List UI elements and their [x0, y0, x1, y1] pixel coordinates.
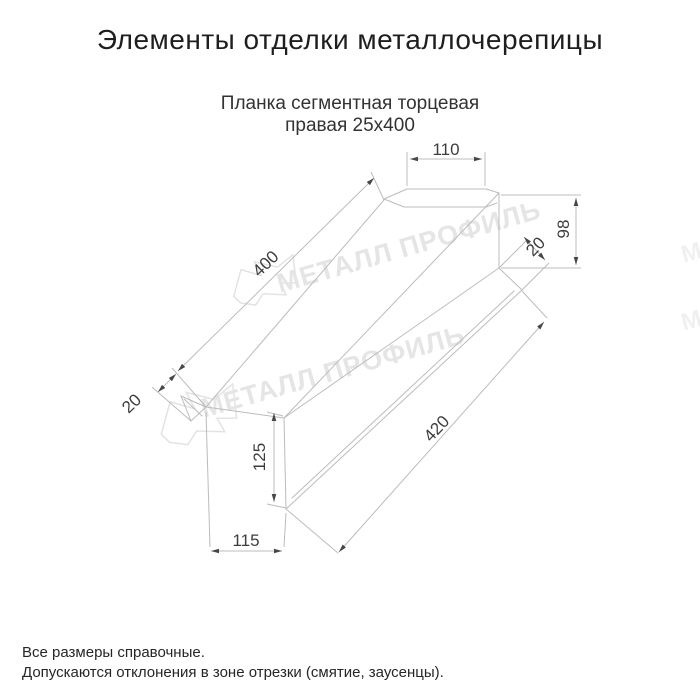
footer-note-sizes: Все размеры справочные. — [22, 644, 205, 661]
dim-top-flange-width: 110 — [432, 140, 459, 160]
technical-drawing — [0, 0, 700, 700]
drawing-page: МЕТАЛЛ ПРОФИЛЬ МЕТАЛЛ ПРОФИЛЬ МЕТАЛЛ ПРО… — [0, 0, 700, 700]
dimension-lines — [152, 152, 581, 552]
dim-left-height: 125 — [250, 443, 270, 471]
footer-note-deviations: Допускаются отклонения в зоне отрезки (с… — [22, 664, 444, 681]
dim-bottom-offset: 115 — [232, 531, 259, 551]
part-outline — [181, 189, 522, 553]
dim-end-height: 98 — [554, 220, 574, 239]
